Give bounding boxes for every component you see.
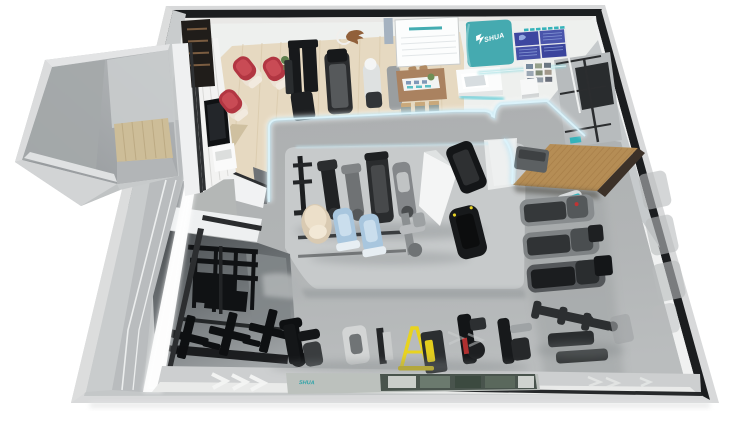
svg-text:SHUA: SHUA	[299, 380, 315, 386]
